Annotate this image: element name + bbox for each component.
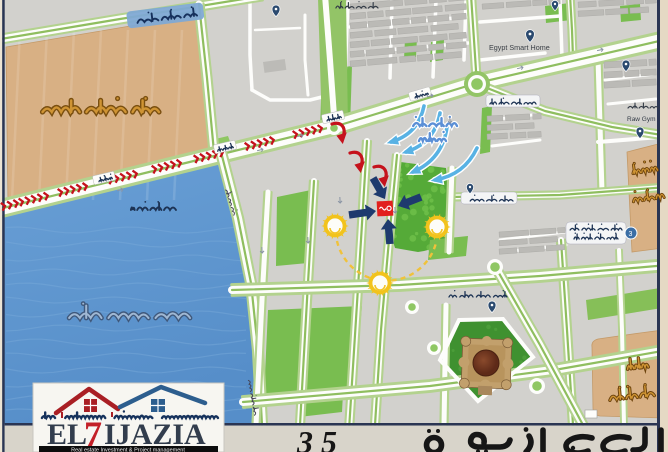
svg-text:Egypt Smart Home: Egypt Smart Home <box>489 43 550 52</box>
svg-text:35: 35 <box>296 424 345 452</box>
svg-text:Raw Gym: Raw Gym <box>627 116 656 123</box>
svg-text:3: 3 <box>629 231 633 238</box>
svg-text:Real estate Investment & Proje: Real estate Investment & Project managem… <box>71 448 185 452</box>
